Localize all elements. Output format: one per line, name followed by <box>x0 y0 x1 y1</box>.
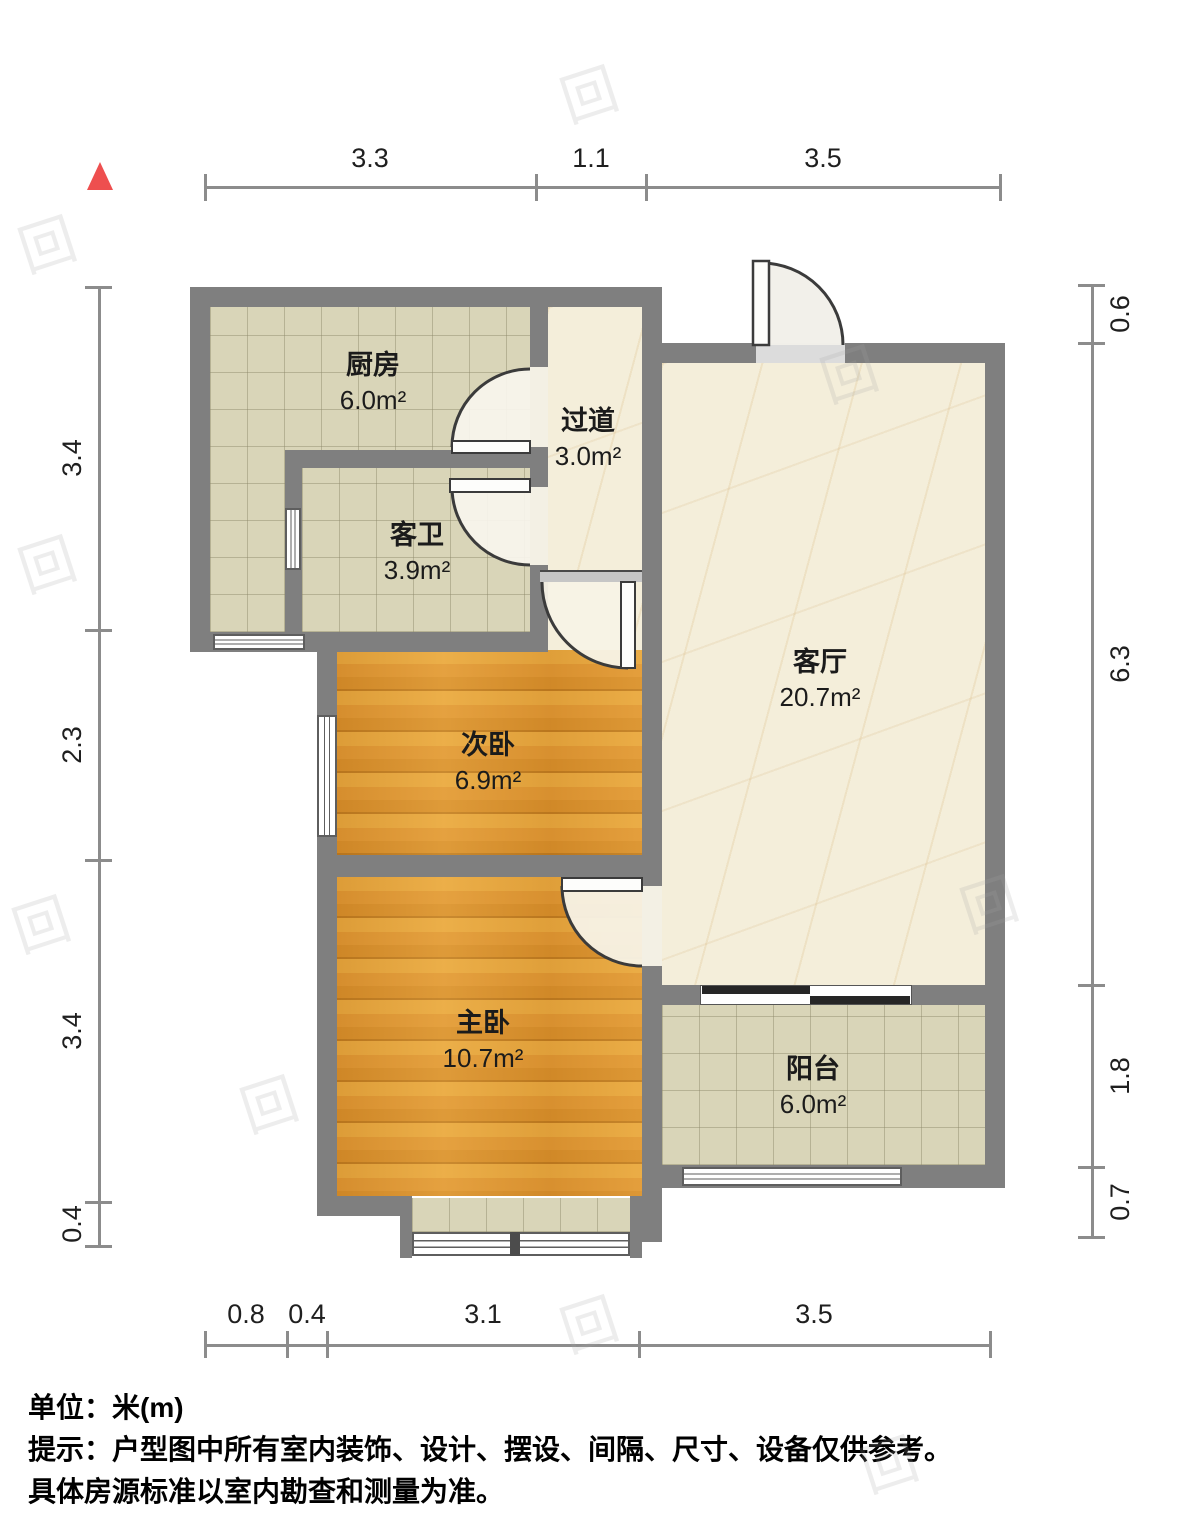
room-area: 20.7m² <box>745 680 895 715</box>
watermark: 回 <box>549 42 633 138</box>
room-label-kitchen: 厨房 6.0m² <box>298 348 448 418</box>
sliding-door-panel <box>702 986 810 994</box>
dimension-tick <box>286 1331 289 1358</box>
dimension-tick <box>999 174 1002 201</box>
dimension-tick <box>1078 342 1105 345</box>
hallway-notch-floor <box>548 582 642 650</box>
entry-door-leaf <box>753 261 769 345</box>
entry-door-swing <box>761 263 843 345</box>
kitchen-window <box>213 634 305 650</box>
dimension-tick <box>326 1331 329 1358</box>
watermark: 回 <box>7 512 91 608</box>
room-name: 厨房 <box>298 348 448 383</box>
room-label-bedroom1: 主卧 10.7m² <box>408 1006 558 1076</box>
watermark: 回 <box>549 1272 633 1368</box>
footer-note-line1: 提示：户型图中所有室内装饰、设计、摆设、间隔、尺寸、设备仅供参考。 <box>28 1428 952 1468</box>
room-name: 客厅 <box>745 645 895 680</box>
wall <box>190 287 210 652</box>
room-label-hallway: 过道 3.0m² <box>513 404 663 474</box>
dimension-label: 1.8 <box>1105 1044 1135 1108</box>
dimension-tick <box>1078 1236 1105 1239</box>
bathroom-window <box>285 508 301 570</box>
dimension-tick <box>85 1245 112 1248</box>
dimension-tick <box>1078 1166 1105 1169</box>
dimension-tick <box>535 174 538 201</box>
wall <box>400 1196 412 1258</box>
footer-unit-line: 单位：米(m) <box>28 1386 184 1426</box>
room-area: 6.0m² <box>298 383 448 418</box>
dimension-label: 3.4 <box>57 999 87 1063</box>
wall-header <box>540 570 642 582</box>
room-area: 3.9m² <box>342 553 492 588</box>
room-label-bedroom2: 次卧 6.9m² <box>413 728 563 798</box>
room-label-bathroom: 客卫 3.9m² <box>342 518 492 588</box>
dimension-tick <box>645 174 648 201</box>
room-name: 主卧 <box>408 1006 558 1041</box>
room-name: 次卧 <box>413 728 563 763</box>
room-area: 6.0m² <box>738 1087 888 1122</box>
dimension-line-top <box>205 186 1000 189</box>
bay-window-mullion <box>510 1232 520 1256</box>
north-indicator-icon <box>87 162 113 190</box>
wall <box>642 1188 662 1242</box>
room-name: 阳台 <box>738 1052 888 1087</box>
footer-note-line2: 具体房源标准以室内勘查和测量为准。 <box>28 1470 504 1510</box>
dimension-label: 0.4 <box>275 1299 339 1329</box>
dimension-tick <box>85 629 112 632</box>
dimension-tick <box>85 286 112 289</box>
dimension-tick <box>1078 984 1105 987</box>
dimension-label: 0.6 <box>1105 282 1135 346</box>
room-name: 过道 <box>513 404 663 439</box>
wall <box>630 1196 642 1258</box>
dimension-label: 3.1 <box>451 1299 515 1329</box>
bathroom-door-opening <box>530 487 548 565</box>
wall <box>317 855 642 877</box>
dimension-tick <box>989 1331 992 1358</box>
wall <box>985 343 1005 1188</box>
watermark: 回 <box>7 192 91 288</box>
dimension-tick <box>204 174 207 201</box>
watermark: 回 <box>1 872 85 968</box>
dimension-label: 3.3 <box>338 143 402 173</box>
dimension-label: 3.5 <box>791 143 855 173</box>
dimension-label: 2.3 <box>57 713 87 777</box>
room-name: 客卫 <box>342 518 492 553</box>
room-label-living: 客厅 20.7m² <box>745 645 895 715</box>
dimension-tick <box>85 859 112 862</box>
wall <box>317 1196 412 1216</box>
dimension-line-left <box>98 287 101 1248</box>
wall <box>190 287 662 307</box>
entry-door-arc <box>761 263 843 345</box>
dimension-tick <box>638 1331 641 1358</box>
dimension-tick <box>204 1331 207 1358</box>
watermark: 回 <box>229 1052 313 1148</box>
dimension-tick <box>1078 284 1105 287</box>
floor-plan: 厨房 6.0m² 过道 3.0m² 客卫 3.9m² 次卧 6.9m² 客厅 2… <box>0 0 1195 1532</box>
room-label-balcony: 阳台 6.0m² <box>738 1052 888 1122</box>
dimension-label: 0.8 <box>214 1299 278 1329</box>
room-area: 3.0m² <box>513 439 663 474</box>
entry-door-opening <box>756 343 845 363</box>
dimension-label: 0.7 <box>1105 1170 1135 1234</box>
bedroom2-window <box>317 715 337 837</box>
bedroom1-door-opening <box>642 886 662 966</box>
dimension-label: 6.3 <box>1105 632 1135 696</box>
dimension-tick <box>85 1201 112 1204</box>
room-area: 10.7m² <box>408 1041 558 1076</box>
room-area: 6.9m² <box>413 763 563 798</box>
balcony-window <box>682 1167 902 1186</box>
dimension-line-bottom <box>205 1344 990 1347</box>
dimension-line-right <box>1091 285 1094 1237</box>
dimension-label: 1.1 <box>559 143 623 173</box>
dimension-label: 0.4 <box>57 1192 87 1256</box>
dimension-label: 3.4 <box>57 426 87 490</box>
sliding-door-panel <box>810 996 910 1004</box>
dimension-label: 3.5 <box>782 1299 846 1329</box>
bay-window <box>412 1232 630 1256</box>
wall <box>285 450 530 468</box>
bay-window-sill <box>412 1198 630 1232</box>
